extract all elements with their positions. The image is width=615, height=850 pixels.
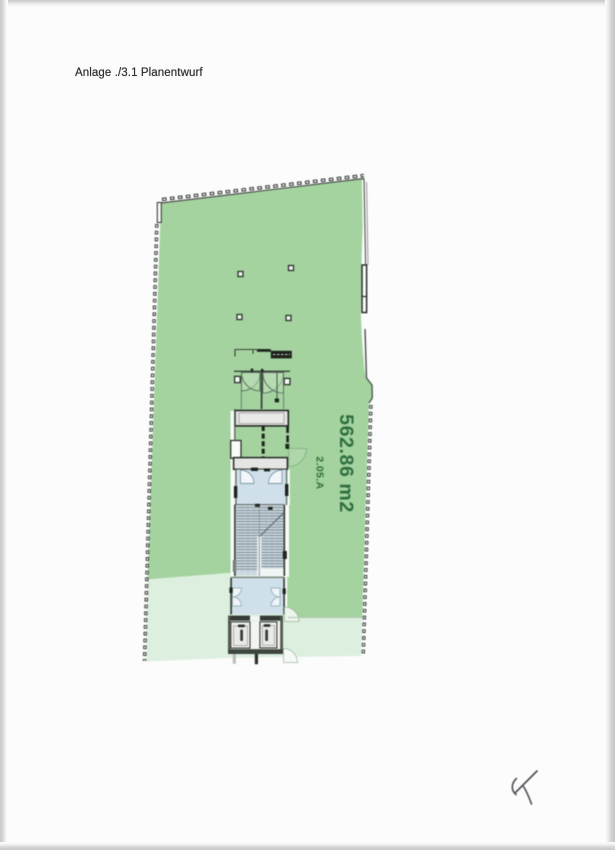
svg-text:562.86 m2: 562.86 m2 — [335, 414, 357, 513]
svg-text:2.05.A: 2.05.A — [314, 456, 326, 489]
